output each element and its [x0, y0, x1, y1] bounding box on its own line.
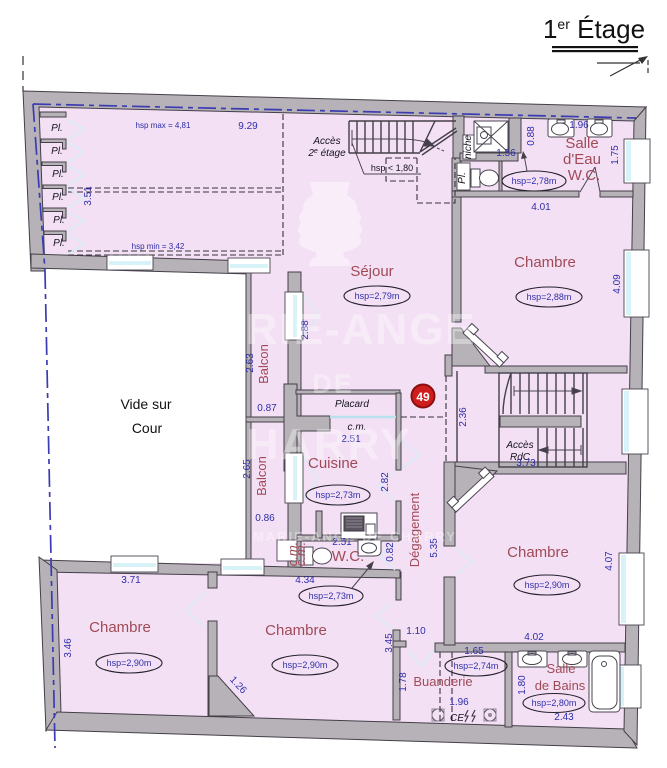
svg-text:hsp=2,90m: hsp=2,90m: [525, 580, 570, 590]
svg-text:hsp=2,80m: hsp=2,80m: [532, 698, 577, 708]
svg-text:Pl.: Pl.: [53, 238, 65, 249]
svg-text:Pl.: Pl.: [52, 169, 64, 180]
svg-text:3.73: 3.73: [516, 458, 536, 469]
svg-text:Pl.: Pl.: [457, 172, 468, 184]
svg-text:2.36: 2.36: [458, 407, 469, 427]
svg-text:hsp=2,73m: hsp=2,73m: [309, 591, 354, 601]
svg-text:Salle: Salle: [547, 661, 576, 676]
svg-text:1.75: 1.75: [610, 145, 621, 165]
svg-text:0.82: 0.82: [385, 542, 396, 562]
svg-text:DE: DE: [312, 369, 354, 399]
svg-text:1.78: 1.78: [398, 672, 409, 692]
svg-text:hsp max = 4,81: hsp max = 4,81: [136, 121, 191, 130]
svg-text:Chambre: Chambre: [265, 622, 327, 639]
svg-text:W.C.: W.C.: [332, 548, 365, 565]
svg-text:4.07: 4.07: [604, 551, 615, 571]
svg-text:Pl.: Pl.: [53, 215, 65, 226]
svg-text:hsp=2,73m: hsp=2,73m: [316, 490, 361, 500]
svg-text:2.82: 2.82: [380, 472, 391, 492]
svg-text:3.45: 3.45: [384, 633, 395, 653]
svg-text:CE: CE: [450, 713, 464, 724]
svg-text:Placard: Placard: [335, 399, 369, 410]
svg-text:hsp=2,90m: hsp=2,90m: [107, 658, 152, 668]
svg-text:d'Eau: d'Eau: [563, 151, 601, 168]
svg-text:1.96: 1.96: [569, 120, 589, 131]
svg-text:3.46: 3.46: [63, 638, 74, 658]
svg-text:niche: niche: [463, 135, 474, 159]
svg-text:hsp=2,88m: hsp=2,88m: [527, 292, 572, 302]
svg-text:Salle: Salle: [565, 135, 598, 152]
svg-text:hsp=2,79m: hsp=2,79m: [355, 291, 400, 301]
svg-text:49: 49: [416, 390, 430, 404]
svg-text:2.63: 2.63: [245, 353, 256, 373]
svg-text:3.51: 3.51: [83, 186, 94, 206]
svg-text:Cour: Cour: [132, 420, 163, 436]
svg-text:3.71: 3.71: [121, 575, 141, 586]
svg-text:4.09: 4.09: [612, 274, 623, 294]
svg-text:4.34: 4.34: [295, 575, 315, 586]
svg-text:Pl.: Pl.: [51, 146, 63, 157]
svg-text:W.C.: W.C.: [568, 167, 601, 184]
svg-text:hsp min = 3,42: hsp min = 3,42: [132, 242, 185, 251]
svg-text:CHARRY: CHARRY: [213, 420, 412, 469]
svg-text:Pl.: Pl.: [52, 192, 64, 203]
svg-text:1.10: 1.10: [406, 626, 426, 637]
svg-text:4.02: 4.02: [524, 632, 544, 643]
svg-text:1.65: 1.65: [464, 646, 484, 657]
svg-text:Buanderie: Buanderie: [413, 674, 472, 689]
svg-text:de Bains: de Bains: [535, 678, 586, 693]
svg-text:hsp=2,90m: hsp=2,90m: [283, 660, 328, 670]
svg-text:Chambre: Chambre: [89, 619, 151, 636]
svg-text:MARIE-ANGE: MARIE-ANGE: [173, 305, 477, 354]
svg-text:1.80: 1.80: [517, 675, 528, 695]
svg-text:0.87: 0.87: [257, 403, 277, 414]
svg-text:1.96: 1.96: [449, 697, 469, 708]
svg-text:2e étage: 2e étage: [307, 148, 346, 160]
svg-text:Accès: Accès: [312, 136, 340, 147]
svg-text:2.43: 2.43: [554, 712, 574, 723]
svg-text:Chambre: Chambre: [514, 254, 576, 271]
svg-text:MARIE-ANGE DE CHARRY: MARIE-ANGE DE CHARRY: [253, 529, 457, 544]
svg-text:Accès: Accès: [505, 440, 533, 451]
svg-text:0.86: 0.86: [255, 513, 275, 524]
svg-text:Pl.: Pl.: [51, 123, 63, 134]
svg-text:hsp < 1,80: hsp < 1,80: [371, 163, 413, 173]
svg-text:Séjour: Séjour: [350, 263, 393, 280]
svg-text:1.56: 1.56: [496, 148, 516, 159]
svg-text:0.88: 0.88: [526, 126, 537, 146]
svg-text:Chambre: Chambre: [507, 544, 569, 561]
svg-text:c.m.: c.m.: [293, 542, 308, 567]
svg-text:hsp=2,74m: hsp=2,74m: [454, 661, 499, 671]
svg-text:Vide sur: Vide sur: [120, 396, 171, 412]
svg-text:9.29: 9.29: [238, 121, 258, 132]
svg-text:4.01: 4.01: [531, 202, 551, 213]
svg-text:hsp=2,78m: hsp=2,78m: [512, 176, 557, 186]
